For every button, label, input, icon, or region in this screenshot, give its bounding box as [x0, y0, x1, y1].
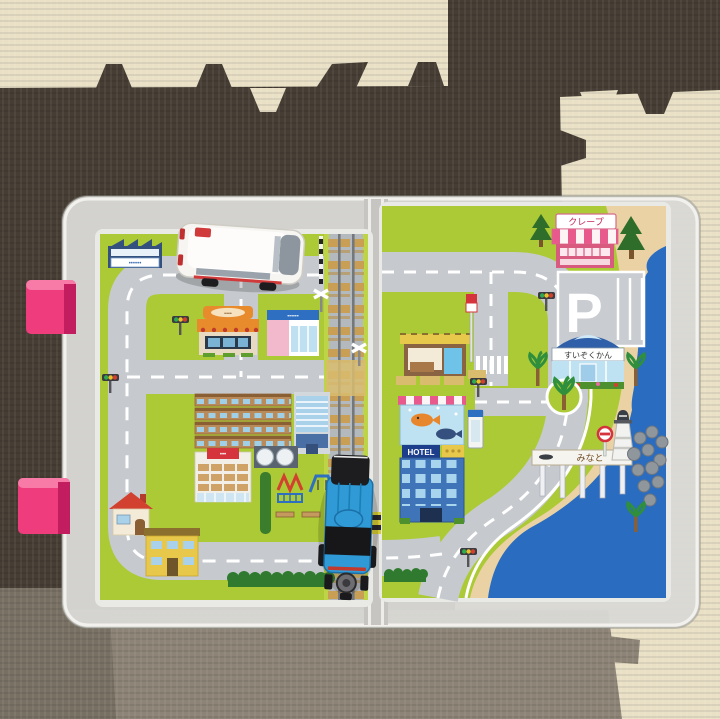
yellow-house [144, 528, 200, 576]
store-sign: ••• [220, 452, 226, 458]
train-black-saddle [324, 526, 371, 556]
bakery-sign: •••• [224, 311, 232, 317]
photo-scene: •••••• •••• •••••• [0, 0, 720, 719]
crepe-shop: クレープ [552, 214, 618, 268]
market-building: •••••• [267, 310, 319, 356]
hotel-sign: HOTEL [407, 448, 434, 457]
market-sign: •••••• [287, 314, 299, 320]
red-sign-store: ••• [195, 448, 251, 502]
ambulance-beacon [195, 227, 212, 237]
hedge-row [384, 568, 428, 582]
crossing-gate-pole [319, 236, 323, 284]
tall-hedge [260, 472, 271, 534]
toy-ambulance [175, 222, 305, 296]
aquarium-sign: すいぞくかん [564, 351, 612, 360]
storage-tanks [254, 446, 298, 468]
photo-canvas: •••••• •••• •••••• [0, 0, 720, 719]
phone-booth [468, 410, 483, 448]
parking-label: P [565, 281, 602, 344]
apartment-rows [195, 394, 291, 450]
train-cab-roof [331, 454, 370, 485]
parking-lot: P [558, 272, 644, 346]
bakery-shop: •••• [197, 306, 259, 357]
factory-sign: •••••• [129, 261, 142, 267]
hotel-building: HOTEL [398, 396, 466, 524]
pool-building [294, 392, 330, 454]
crepe-sign: クレープ [568, 217, 603, 227]
right-map-page: クレープ P すいぞくかん [382, 206, 668, 598]
harbor-sign: みなと [576, 453, 603, 463]
